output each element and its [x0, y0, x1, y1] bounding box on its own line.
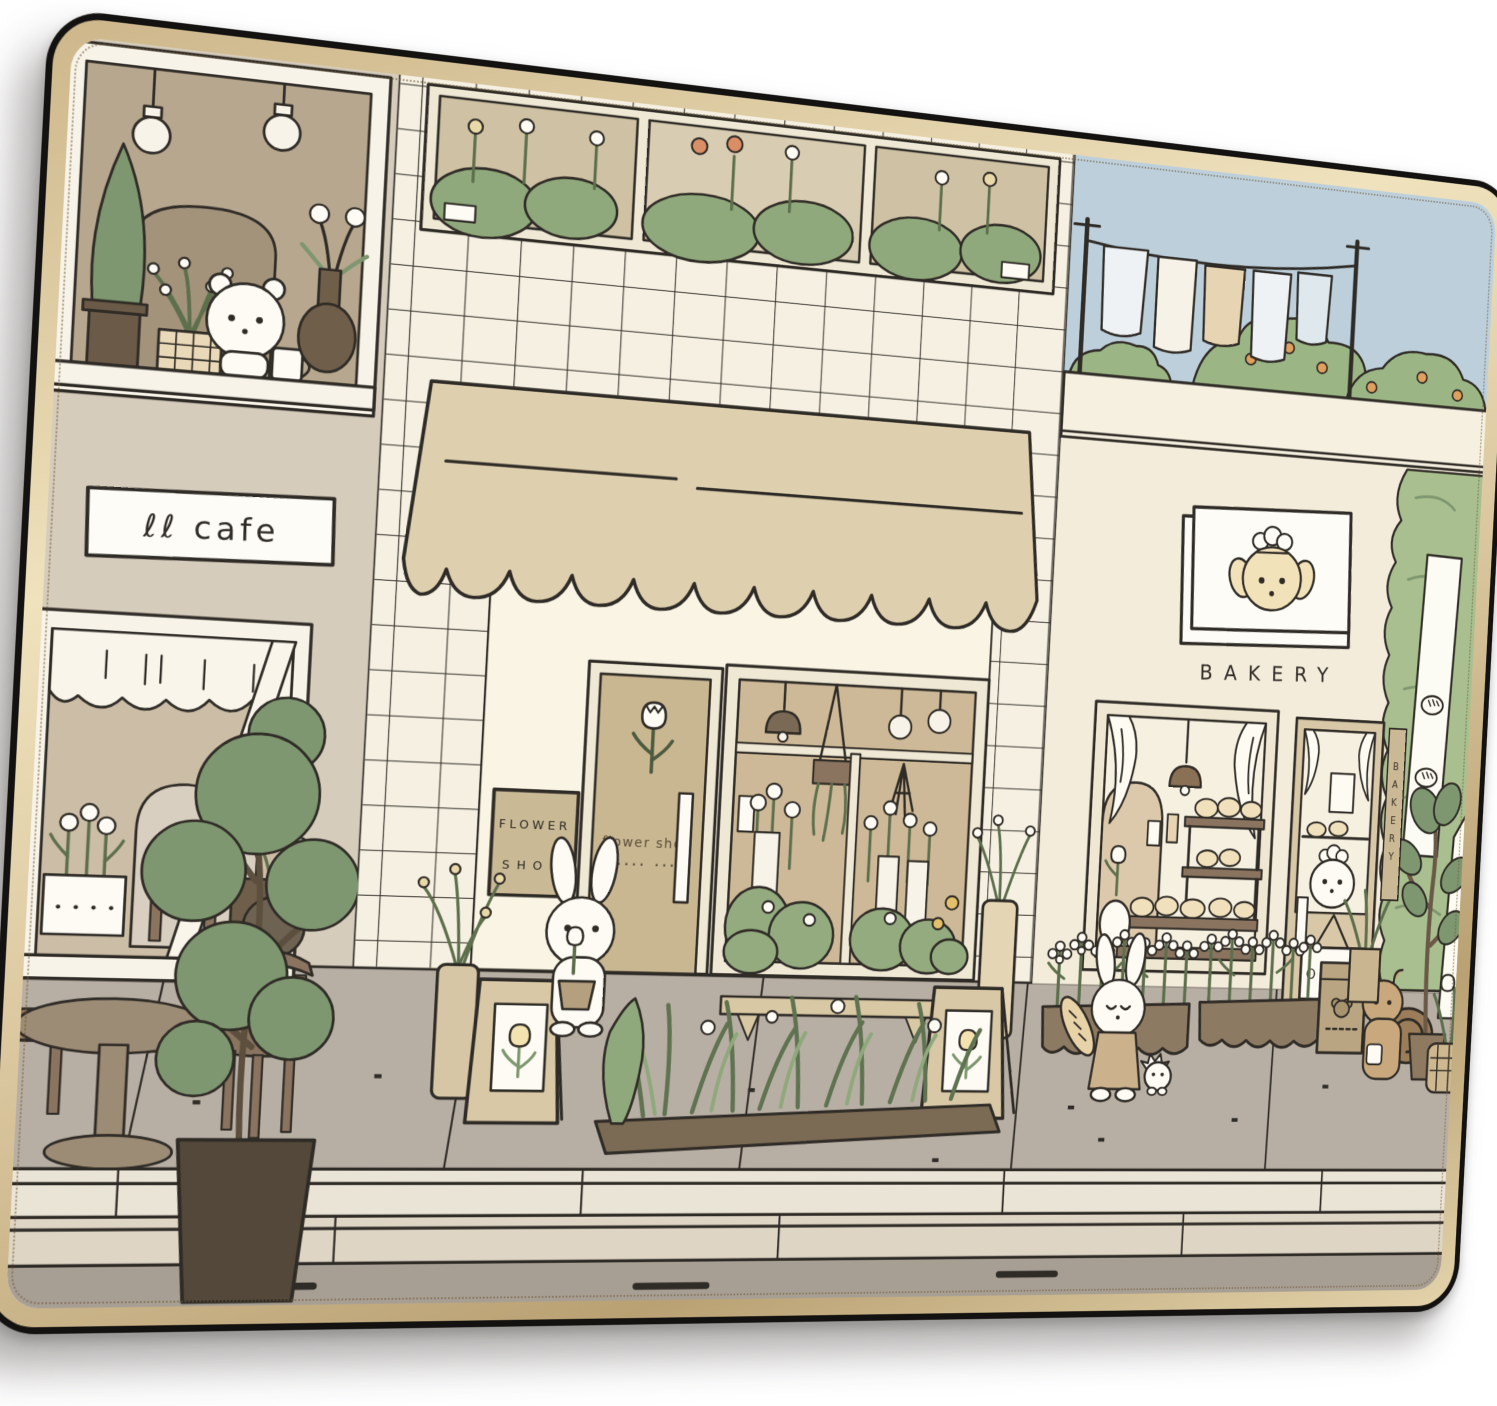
street-scene: ℓℓ cafe: [6, 36, 1497, 1309]
door-dots: ···· ···: [615, 854, 677, 877]
mousepad-artwork: ℓℓ cafe: [6, 36, 1497, 1309]
product-photo: ℓℓ cafe: [0, 0, 1497, 1406]
bakery-building: BAKERY: [1026, 145, 1497, 1104]
cafe-sign-text: ℓℓ cafe: [142, 507, 280, 550]
bakery-sign-label: BAKERY: [1199, 661, 1339, 688]
mousepad: ℓℓ cafe: [0, 7, 1497, 1335]
bakery-window: [1082, 701, 1278, 974]
cafe-upper-window: [47, 39, 391, 416]
cafe-sign: ℓℓ cafe: [86, 487, 334, 565]
plaque-line1: FLOWER: [498, 818, 570, 834]
flower-shop-window: [711, 665, 990, 980]
